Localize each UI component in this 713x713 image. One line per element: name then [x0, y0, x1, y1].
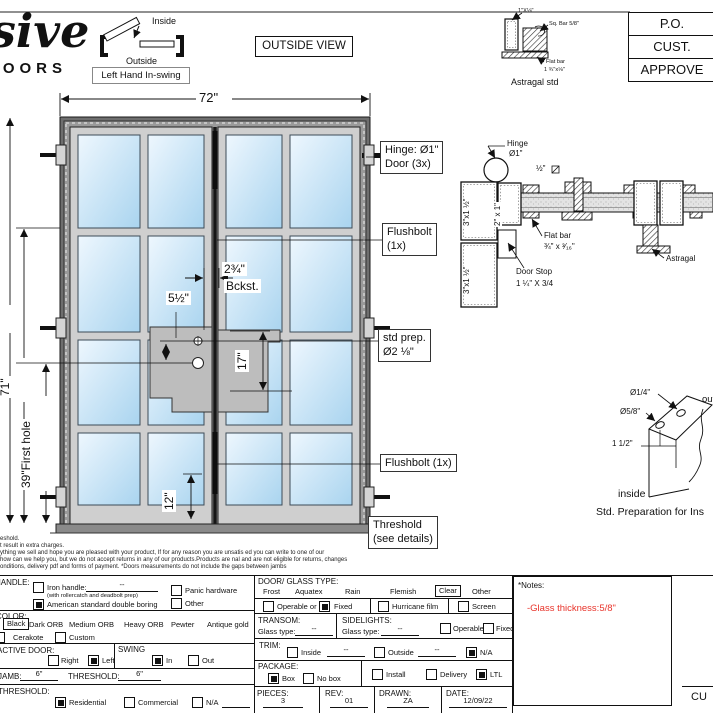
section-astragal-label: Astragal — [666, 254, 695, 263]
callout-hinge: Hinge: Ø1" Door (3x) — [380, 141, 443, 174]
delivery-checkbox[interactable] — [426, 669, 437, 680]
trim-label: TRIM: — [259, 641, 281, 650]
callout-threshold: Threshold (see details) — [368, 516, 438, 549]
signature-label: CU — [691, 691, 707, 703]
shipping-cell: Install Delivery LTL — [362, 661, 513, 687]
sidelights-operable-checkbox[interactable] — [440, 623, 451, 634]
pieces-value[interactable]: 3 — [263, 696, 303, 708]
disclaimer-line: onditions, delivery pdf and forms of pay… — [0, 564, 287, 571]
color-dark-orb[interactable]: Dark ORB — [29, 620, 63, 629]
iron-handle-option: Iron handle: — [47, 583, 87, 592]
transom-glass-type-label: Glass type: — [258, 627, 296, 636]
active-door-cell: ACTIVE DOOR: Right Left — [0, 644, 115, 669]
handle-other-option: Other — [185, 599, 204, 608]
sidelights-operable-option: Operable — [453, 624, 484, 633]
callout-stdprep-line1: std prep. — [383, 331, 426, 345]
callout-flushbolt-line2: (1x) — [387, 239, 432, 253]
cerakote-checkbox[interactable] — [0, 632, 5, 643]
callout-flushbolt-line1: Flushbolt — [387, 225, 432, 239]
threshold-label: THRESHOLD: — [0, 687, 50, 696]
glass-other[interactable]: Other — [472, 587, 491, 596]
transom-label: TRANSOM: — [258, 616, 300, 625]
trim-inside-checkbox[interactable] — [287, 647, 298, 658]
dim-width-72: 72" — [197, 90, 220, 105]
callout-hinge-line2: Door (3x) — [385, 157, 438, 171]
install-option: Install — [386, 670, 406, 679]
american-boring-checkbox[interactable] — [33, 599, 44, 610]
pieces-cell: PIECES: 3 — [255, 687, 320, 713]
color-black-selected[interactable]: Black — [3, 618, 29, 630]
iron-handle-checkbox[interactable] — [33, 582, 44, 593]
callout-hinge-line1: Hinge: Ø1" — [385, 143, 438, 157]
section-flatbar-size: ¾" x ³⁄₁₆" — [544, 242, 575, 251]
handle-cell: HANDLE: Iron handle: -- (with rollercatc… — [0, 576, 255, 611]
transom-cell: TRANSOM: Glass type: -- — [255, 614, 337, 639]
screen-option: Screen — [472, 602, 496, 611]
custom-color-option: Custom — [69, 633, 95, 642]
handle-other-checkbox[interactable] — [171, 598, 182, 609]
cell-divider — [370, 599, 371, 614]
astragal-flatbar-size: 1 ¾"x⅛" — [544, 67, 565, 73]
threshold-na-option: N/A — [206, 698, 219, 707]
residential-option: Residential — [69, 698, 106, 707]
prep-outside-label: outside — [702, 394, 713, 405]
prep-dim-onehalf: 1 1/2" — [612, 439, 633, 448]
drawn-value[interactable]: ZA — [387, 696, 429, 708]
astragal-flatbar-label: Flat bar — [546, 59, 565, 65]
ltl-option: LTL — [490, 670, 502, 679]
jamb-value[interactable]: 6" — [20, 669, 58, 681]
trim-outside-checkbox[interactable] — [374, 647, 385, 658]
trim-inside-option: Inside — [301, 648, 321, 657]
ltl-checkbox[interactable] — [476, 669, 487, 680]
trim-inside-value[interactable]: -- — [327, 645, 365, 657]
section-doorstop-label: Door Stop — [516, 267, 552, 276]
swing-inside-label: Inside — [152, 16, 176, 26]
operable-checkbox[interactable] — [263, 601, 274, 612]
hurricane-option: Hurricane film — [392, 602, 438, 611]
section-doorstop-size: 1 ¼" X 3/4 — [516, 279, 553, 288]
threshold-cell: THRESHOLD: Residential Commercial N/A — [0, 685, 255, 713]
jamb-threshold-label: THRESHOLD: — [68, 672, 120, 681]
callout-threshold-line2: (see details) — [373, 532, 433, 546]
panic-hardware-option: Panic hardware — [185, 586, 237, 595]
color-pewter[interactable]: Pewter — [171, 620, 194, 629]
sidelights-glass-value[interactable]: -- — [381, 624, 419, 636]
astragal-sqbar-label: Sq. Bar 5/8" — [549, 21, 579, 27]
package-box-checkbox[interactable] — [268, 673, 279, 684]
outside-view-label: OUTSIDE VIEW — [255, 36, 353, 57]
glass-flemish[interactable]: Flemish — [390, 587, 416, 596]
operable-option: Operable or — [277, 602, 317, 611]
active-door-label: ACTIVE DOOR: — [0, 646, 54, 655]
sidelights-glass-type-label: Glass type: — [342, 627, 380, 636]
corner-prep-detail — [641, 394, 712, 497]
glass-frost[interactable]: Frost — [263, 587, 280, 596]
notes-box: *Notes: -Glass thickness:5/8" — [513, 576, 672, 706]
date-value[interactable]: 12/09/22 — [449, 696, 507, 708]
callout-flushbolt-top: Flushbolt (1x) — [382, 223, 437, 256]
color-heavy-orb[interactable]: Heavy ORB — [124, 620, 164, 629]
signature-line — [682, 686, 713, 687]
cust-row: CUST. — [629, 36, 713, 59]
commercial-option: Commercial — [138, 698, 178, 707]
trim-outside-value[interactable]: -- — [418, 645, 456, 657]
section-jamb-tube-b: 3"x1 ½" — [462, 266, 471, 295]
glass-options-cell: Operable or Fixed Hurricane film Screen — [255, 599, 513, 614]
glass-rain[interactable]: Rain — [345, 587, 360, 596]
sidelights-fixed-option: Fixed — [496, 624, 514, 633]
dim-17: 17" — [235, 350, 249, 372]
sidelights-cell: SIDELIGHTS: Glass type: -- Operable Fixe… — [337, 614, 513, 639]
package-nobox-option: No box — [317, 674, 341, 683]
dim-39-first-hole: 39"First hole — [19, 419, 33, 490]
delivery-option: Delivery — [440, 670, 467, 679]
approve-row: APPROVE — [629, 59, 713, 82]
color-cell: COLOR: Black Dark ORB Medium ORB Heavy O… — [0, 611, 255, 644]
section-hinge-label: Hinge — [507, 139, 528, 148]
section-hinge-size: Ø1" — [509, 149, 523, 158]
astragal-detail-title: Astragal std — [511, 77, 559, 87]
threshold-na-checkbox[interactable] — [192, 697, 203, 708]
prep-inside-label: inside — [618, 488, 645, 500]
install-checkbox[interactable] — [372, 669, 383, 680]
custom-color-checkbox[interactable] — [55, 632, 66, 643]
package-label: PACKAGE: — [258, 662, 298, 671]
swing-outside-label: Outside — [126, 56, 157, 66]
package-nobox-checkbox[interactable] — [303, 673, 314, 684]
approval-table: P.O. CUST. APPROVE — [628, 12, 713, 82]
active-left-checkbox[interactable] — [88, 655, 99, 666]
trim-outside-option: Outside — [388, 648, 414, 657]
trim-na-checkbox[interactable] — [466, 647, 477, 658]
fixed-option: Fixed — [334, 602, 352, 611]
fixed-checkbox[interactable] — [319, 601, 330, 612]
active-right-checkbox[interactable] — [48, 655, 59, 666]
prep-dia-fiveeighths: Ø5/8" — [620, 407, 640, 416]
dim-backset-value: 2¾" — [222, 262, 247, 276]
glass-type-label: DOOR/ GLASS TYPE: — [258, 577, 338, 586]
hurricane-checkbox[interactable] — [378, 601, 389, 612]
door-elevation — [40, 117, 405, 533]
glass-type-cell: DOOR/ GLASS TYPE: Frost Aquatex Rain Fle… — [255, 576, 513, 599]
po-row: P.O. — [629, 12, 713, 36]
package-cell: PACKAGE: Box No box — [255, 661, 362, 687]
glass-thickness-note: -Glass thickness:5/8" — [527, 603, 616, 614]
american-boring-option: American standard double boring — [47, 600, 158, 609]
jamb-threshold-value[interactable]: 6" — [118, 669, 161, 681]
screen-checkbox[interactable] — [458, 601, 469, 612]
section-flatbar-label: Flat bar — [544, 231, 571, 240]
swing-out-checkbox[interactable] — [188, 655, 199, 666]
date-cell: DATE: 12/09/22 — [442, 687, 513, 713]
prep-dia-quarter: Ø1/4" — [630, 388, 650, 397]
jamb-label: JAMB: — [0, 672, 22, 681]
section-door-tube: 2" x 1" — [493, 202, 502, 227]
section-jamb-tube-a: 3"x1 ½" — [462, 198, 471, 227]
dim-5half: 5½" — [166, 291, 191, 305]
package-box-option: Box — [282, 674, 295, 683]
prep-detail-title: Std. Preparation for Ins — [596, 506, 704, 518]
iron-handle-subnote: (with rollercatch and deadbolt prep) — [47, 593, 138, 599]
active-left-option: Left — [102, 656, 115, 665]
swing-cell: SWING In Out — [115, 644, 255, 669]
iron-handle-value[interactable]: -- — [86, 580, 158, 592]
astragal-std-detail — [502, 13, 548, 62]
notes-title: *Notes: — [518, 581, 544, 590]
trim-cell: TRIM: Inside -- Outside -- N/A — [255, 639, 513, 661]
trim-na-option: N/A — [480, 648, 493, 657]
color-antique-gold[interactable]: Antique gold — [207, 620, 249, 629]
panic-hardware-checkbox[interactable] — [171, 585, 182, 596]
astragal-tube-size: 1"X⅛" — [518, 8, 533, 14]
swing-in-option: In — [166, 656, 172, 665]
section-half-bar: ½" — [536, 164, 546, 173]
glass-aquatex[interactable]: Aquatex — [295, 587, 323, 596]
rev-value[interactable]: 01 — [330, 696, 368, 708]
dim-71: 71" — [0, 376, 12, 398]
callout-std-prep: std prep. Ø2 ⅛" — [378, 329, 431, 362]
dim-backset-label: Bckst. — [224, 279, 261, 293]
drawing-sheet: sive DOORS Inside Outside Left Hand In-s… — [0, 0, 713, 713]
commercial-checkbox[interactable] — [124, 697, 135, 708]
rev-cell: REV: 01 — [320, 687, 375, 713]
color-medium-orb[interactable]: Medium ORB — [69, 620, 114, 629]
active-right-option: Right — [61, 656, 79, 665]
cell-divider — [448, 599, 449, 614]
order-form: HANDLE: Iron handle: -- (with rollercatc… — [0, 575, 713, 713]
swing-in-checkbox[interactable] — [152, 655, 163, 666]
sidelights-fixed-checkbox[interactable] — [483, 623, 494, 634]
swing-out-option: Out — [202, 656, 214, 665]
drawn-cell: DRAWN: ZA — [375, 687, 442, 713]
callout-flushbolt-bottom: Flushbolt (1x) — [380, 454, 457, 472]
callout-stdprep-line2: Ø2 ⅛" — [383, 345, 426, 359]
residential-checkbox[interactable] — [55, 697, 66, 708]
glass-clear-selected[interactable]: Clear — [435, 585, 461, 597]
cerakote-option: Cerakote — [13, 633, 43, 642]
swing-type-label: Left Hand In-swing — [92, 67, 190, 84]
handle-label: HANDLE: — [0, 578, 30, 587]
brand-logo-script: sive — [0, 4, 89, 58]
transom-glass-value[interactable]: -- — [295, 624, 333, 636]
brand-logo-caps: DOORS — [0, 60, 67, 77]
dim-12: 12" — [162, 490, 176, 512]
threshold-na-value[interactable] — [222, 696, 250, 708]
jamb-cell: JAMB: 6" THRESHOLD: 6" — [0, 669, 255, 685]
callout-threshold-line1: Threshold — [373, 518, 433, 532]
swing-label: SWING — [118, 645, 145, 654]
